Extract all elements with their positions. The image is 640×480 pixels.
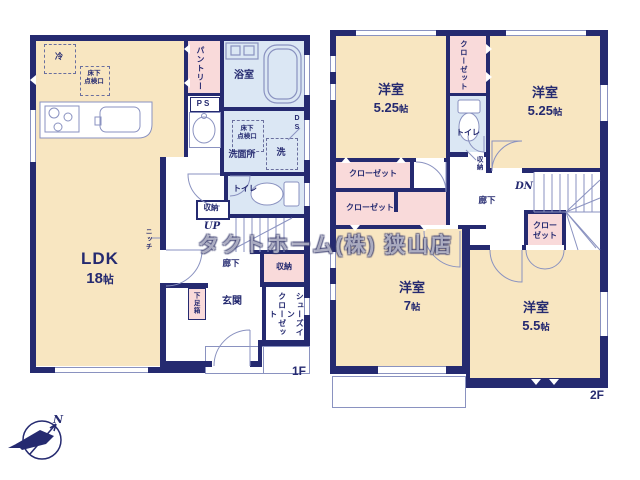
f2-window-bl-left [330, 284, 336, 300]
f2-window-tl-left [330, 56, 336, 72]
f1-wall [260, 282, 304, 287]
f1-window-toilet [304, 183, 310, 206]
f2-closet-door-icon [549, 379, 559, 385]
f1-wall [224, 214, 304, 218]
f1-wash-label: 洗面所 [222, 149, 262, 160]
f2-hall-label: 廊下 [472, 195, 502, 206]
f2-bedroom-br-label: 洋室 [506, 300, 566, 316]
f1-wall [262, 287, 266, 340]
f1-window-bath [304, 55, 310, 95]
f1-window-wash [304, 120, 310, 160]
f2-door-opening [416, 158, 444, 162]
f1-ps-label: PS [190, 99, 218, 109]
f1-hall-label: 廊下 [216, 258, 246, 269]
f2-window-tl-left [330, 84, 336, 100]
f2-closet-stairs-label: クロー ゼット [528, 221, 562, 242]
f2-balcony [332, 376, 466, 408]
f2-bedroom-tl-size: 5.25帖 [361, 100, 421, 116]
f2-room-toilet [450, 96, 486, 152]
f2-bedroom-bl-size: 7帖 [382, 298, 442, 314]
f1-wall [188, 93, 220, 96]
f2-room-bedroom-tr [490, 36, 600, 168]
f1-shoebox-label: 下足箱 [191, 290, 199, 317]
f2-storage-label: 収納 [474, 150, 482, 176]
watermark: タクトホーム(株) 狭山店 [198, 229, 453, 259]
f1-wall [224, 172, 304, 176]
f2-bedroom-br-size: 5.5帖 [506, 318, 566, 334]
f1-vent-icon [184, 78, 190, 88]
f2-window-tr-top [506, 30, 586, 36]
f2-closet-door-icon [396, 157, 406, 163]
f1-window-ldk-left [30, 110, 36, 162]
f2-door-opening [492, 168, 522, 173]
f1-hatch-wash-label: 床下 点検口 [232, 125, 262, 141]
floorplan-canvas: LDK 18帖 パントリー PS 浴室 洗面所 D S トイレ 収納 UP 廊下… [0, 0, 640, 480]
f2-window-bl-bottom [378, 366, 446, 374]
f1-washbasin-box [189, 112, 221, 148]
f1-room-toilet [228, 176, 304, 214]
f2-bedroom-bl-label: 洋室 [382, 280, 442, 296]
f1-ldk-door-opening [160, 250, 166, 287]
f1-window-ldk-bottom [55, 367, 148, 373]
f1-window-sic [304, 298, 310, 315]
f1-vent-icon [184, 44, 190, 54]
f2-toilet-label: トイレ [453, 128, 483, 138]
f2-floor-label: 2F [582, 388, 612, 403]
f1-fridge-label: 冷 [44, 52, 74, 62]
f1-wall [224, 107, 304, 111]
f1-porch-divider [263, 346, 264, 374]
f1-wall [262, 340, 310, 346]
f2-window-tl-top [356, 30, 436, 36]
f1-wall [160, 361, 212, 367]
f1-floor-label: 1F [284, 364, 314, 379]
f1-pantry-label: パントリー [195, 45, 205, 91]
f2-closet-door-icon [341, 157, 351, 163]
f2-bedroom-tr-size: 5.25帖 [515, 103, 575, 119]
f2-closet-door-icon [531, 379, 541, 385]
f2-window-tr-right [600, 85, 608, 121]
f2-closet-left-upper-label: クローゼット [341, 169, 405, 179]
f2-door-opening [490, 245, 522, 250]
compass-north-label: N [50, 413, 66, 427]
f1-entrance-label: 玄関 [212, 296, 252, 309]
f2-door-opening [526, 245, 564, 250]
f1-ds-label: D S [290, 114, 304, 132]
f2-dn-label: DN [512, 181, 536, 194]
f2-closet-top-label: クローゼット [459, 39, 468, 91]
f1-vent-icon [30, 75, 36, 85]
f1-wall [250, 361, 262, 367]
f1-storage-entry-label: 収納 [266, 262, 302, 272]
f1-ldk-label: LDK [60, 248, 140, 269]
f2-bedroom-tr-label: 洋室 [515, 85, 575, 101]
f2-bedroom-tl-label: 洋室 [361, 82, 421, 98]
f2-closet-door-icon [486, 44, 492, 54]
f1-toilet-label: トイレ [230, 184, 260, 194]
f1-storage-understairs-label: 収納 [196, 203, 226, 212]
f1-hatch-kitchen-label: 床下 点検口 [79, 70, 109, 86]
f1-sic-label: シューズイン クローゼット [268, 288, 303, 340]
f2-door-zone [414, 162, 446, 188]
f2-window-br-right [600, 292, 608, 336]
f1-niche-label: ニッチ [143, 222, 151, 256]
f2-closet-left-lower-label: クローゼット [338, 203, 402, 213]
f1-bath-label: 浴室 [226, 70, 262, 83]
f1-ldk-size: 18帖 [60, 270, 140, 289]
f2-closet-door-icon [486, 72, 492, 82]
f1-washer-label: 洗 [266, 147, 296, 158]
f1-wall [184, 41, 188, 157]
